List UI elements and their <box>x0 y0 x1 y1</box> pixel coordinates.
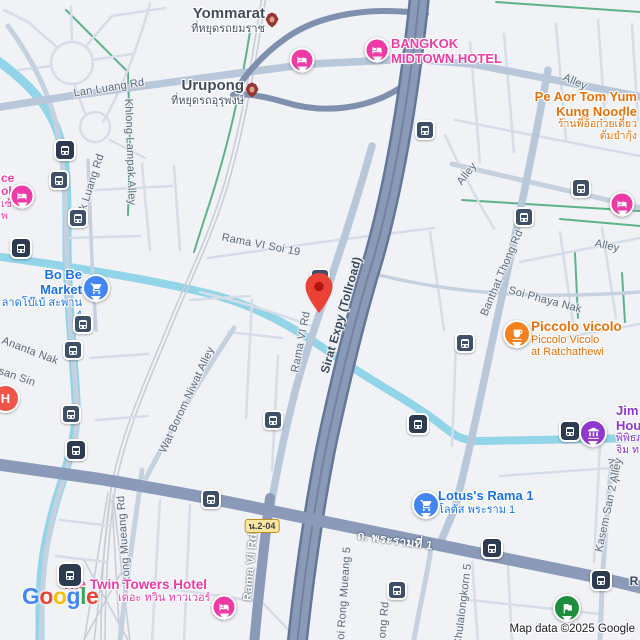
poi-name-thai: ต้มยำกุ้ง <box>535 131 637 143</box>
map-attribution: Map data ©2025 Google <box>510 623 635 635</box>
poi-subtitle: Piccolo Vicolo <box>531 334 622 346</box>
flag-icon <box>561 602 574 615</box>
station-name-thai: ที่หยุดรถอุรุพงษ์ <box>171 95 244 107</box>
bus-icon <box>79 320 87 329</box>
bus-stop-icon[interactable] <box>68 208 88 228</box>
train-icon <box>414 420 422 429</box>
poi-label-lotus[interactable]: Lotus's Rama 1 โลตัส พระราม 1 <box>438 489 534 516</box>
train-icon <box>488 544 496 553</box>
bed-icon <box>372 45 383 56</box>
station-name: Urupong <box>171 78 244 95</box>
shopping-cart-icon <box>90 282 103 295</box>
bus-icon <box>69 346 77 355</box>
destination-pin[interactable] <box>306 273 333 318</box>
station-name: Yommarat <box>191 6 265 23</box>
poi-name: Piccolo vicolo <box>531 319 622 334</box>
logo-letter: o <box>39 583 53 609</box>
logo-letter: e <box>86 583 98 609</box>
poi-label-bangkok-midtown[interactable]: BANGKOK MIDTOWN HOTEL <box>391 37 502 66</box>
poi-label-pe-aor[interactable]: Pe Aor Tom Yum Kung Noodle ร้านพี่อ้อก๋ว… <box>535 90 637 143</box>
hotel-pin[interactable] <box>610 192 635 217</box>
bus-icon <box>207 495 215 504</box>
train-stop-icon[interactable] <box>590 569 612 591</box>
logo-letter: G <box>22 583 39 609</box>
poi-name: Kung Noodle <box>535 105 637 120</box>
poi-name-thai: โลตัส พระราม 1 <box>438 504 534 516</box>
poi-label-jim-thompson[interactable]: Jim T Hous พิพิธภ จิม ทอ <box>616 404 640 457</box>
cafe-pin[interactable] <box>503 320 531 348</box>
train-stop-icon[interactable] <box>559 420 581 442</box>
route-shield: น.2-04 <box>245 519 280 533</box>
train-stop-icon[interactable] <box>65 439 87 461</box>
bus-stop-icon[interactable] <box>571 178 591 198</box>
hospital-h-icon: H <box>1 391 10 406</box>
train-icon <box>66 571 74 580</box>
bus-stop-icon[interactable] <box>415 120 435 140</box>
poi-label-piccolo[interactable]: Piccolo vicolo Piccolo Vicolo at Ratchat… <box>531 319 622 359</box>
station-label-urupong[interactable]: Urupong ที่หยุดรถอุรุพงษ์ <box>171 78 244 107</box>
museum-icon <box>587 427 600 440</box>
train-icon <box>17 244 25 253</box>
bus-stop-icon[interactable] <box>387 580 407 600</box>
poi-name: MIDTOWN HOTEL <box>391 52 502 67</box>
poi-name: Lotus's Rama 1 <box>438 489 534 504</box>
station-label-yommarat[interactable]: Yommarat ที่หยุดรถยมราช <box>191 6 265 35</box>
train-icon <box>566 427 574 436</box>
hotel-pin[interactable] <box>365 38 390 63</box>
market-pin[interactable] <box>82 274 110 302</box>
bus-stop-icon[interactable] <box>49 170 69 190</box>
bus-icon <box>393 586 401 595</box>
coffee-cup-icon <box>511 328 524 341</box>
poi-subtitle: at Ratchathewi <box>531 346 622 358</box>
bus-icon <box>55 176 63 185</box>
bus-stop-icon[interactable] <box>263 410 283 430</box>
map-canvas[interactable]: Lan Luang Rd Luk Luang Rd Khlong Lampak … <box>0 0 640 640</box>
poi-name-thai: ลาดโบ๊เบ้ สะพาน 4 <box>0 297 82 322</box>
hotel-pin[interactable] <box>212 595 237 620</box>
poi-name-thai: พ <box>1 211 15 223</box>
bus-icon <box>74 214 82 223</box>
bus-stop-icon[interactable] <box>63 340 83 360</box>
hotel-pin[interactable] <box>10 184 35 209</box>
train-icon <box>61 146 69 155</box>
train-icon <box>597 576 605 585</box>
bus-stop-icon[interactable] <box>201 489 221 509</box>
train-stop-icon[interactable] <box>10 237 32 259</box>
map-marker-icon <box>306 273 333 313</box>
poi-name: Bo Be Market <box>0 268 82 297</box>
bed-icon <box>219 602 230 613</box>
bus-stop-icon[interactable] <box>61 404 81 424</box>
museum-pin[interactable] <box>579 419 607 447</box>
station-name-thai: ที่หยุดรถยมราช <box>191 23 265 35</box>
hotel-pin[interactable] <box>290 48 315 73</box>
logo-letter: o <box>53 583 67 609</box>
poi-name: Jim T <box>616 404 640 419</box>
bus-icon <box>67 410 75 419</box>
poi-name: Pe Aor Tom Yum <box>535 90 637 105</box>
poi-name: Hous <box>616 419 640 434</box>
poi-label-bobe-market[interactable]: Bo Be Market ลาดโบ๊เบ้ สะพาน 4 <box>0 268 82 322</box>
shopping-cart-icon <box>420 499 433 512</box>
bus-stop-icon[interactable] <box>73 314 93 334</box>
train-stop-icon[interactable] <box>407 413 429 435</box>
train-stop-icon[interactable] <box>54 139 76 161</box>
road-label-partial-r: R <box>630 574 639 588</box>
bed-icon <box>297 55 308 66</box>
bed-icon <box>17 191 28 202</box>
bus-icon <box>461 339 469 348</box>
bus-stop-icon[interactable] <box>455 333 475 353</box>
train-stop-icon[interactable] <box>481 537 503 559</box>
google-logo[interactable]: Google <box>22 583 98 610</box>
bus-stop-icon[interactable] <box>514 207 534 227</box>
bus-icon <box>269 416 277 425</box>
bus-icon <box>577 184 585 193</box>
bus-icon <box>520 213 528 222</box>
bed-icon <box>617 199 628 210</box>
poi-name-thai: จิม ทอ <box>616 445 640 457</box>
supermarket-pin[interactable] <box>412 491 440 519</box>
logo-letter: g <box>67 583 81 609</box>
bus-icon <box>421 126 429 135</box>
train-icon <box>72 446 80 455</box>
poi-name: BANGKOK <box>391 37 502 52</box>
attraction-pin[interactable] <box>553 594 581 622</box>
